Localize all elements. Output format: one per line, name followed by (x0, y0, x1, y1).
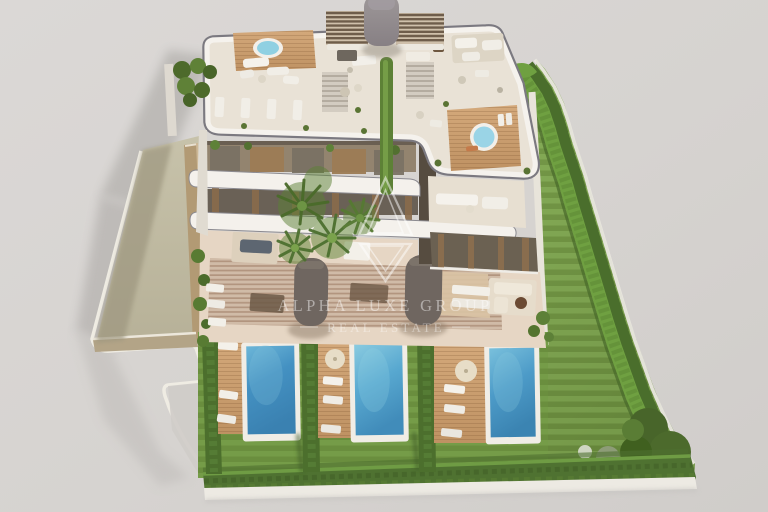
svg-text:ALPHA LUXE GROUP: ALPHA LUXE GROUP (277, 296, 492, 315)
svg-text:REAL ESTATE: REAL ESTATE (327, 320, 445, 335)
